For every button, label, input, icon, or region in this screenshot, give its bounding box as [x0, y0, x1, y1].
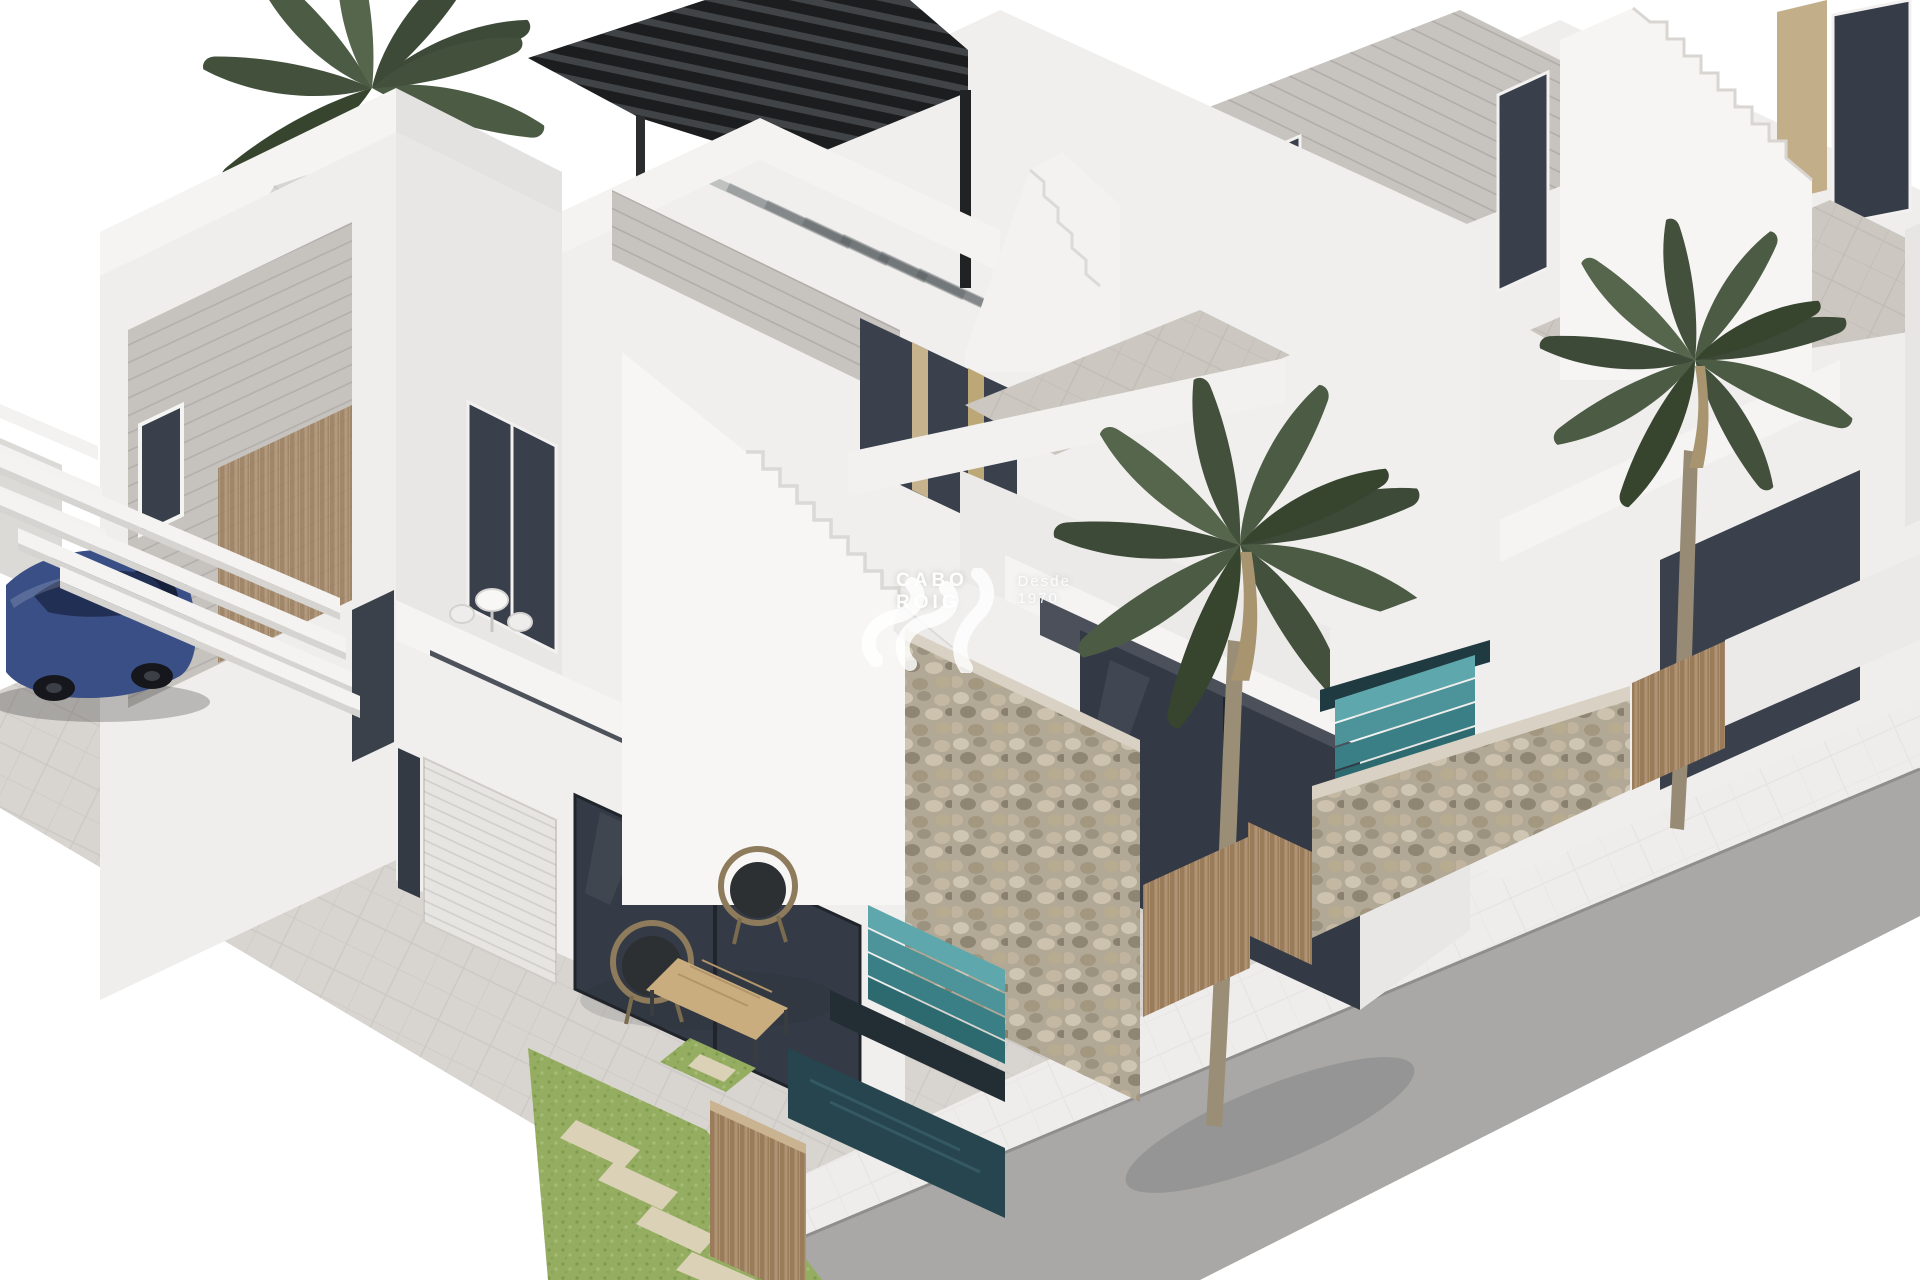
- villa-4-wall: [1905, 223, 1920, 527]
- villa-1-narrow-window: [398, 748, 420, 898]
- villa-4-window: [1833, 0, 1910, 225]
- villa-1-entry-door: [352, 590, 394, 762]
- villa-3-window-3: [1498, 72, 1548, 291]
- pergola-post: [960, 90, 971, 288]
- render-canvas: CABO ROIG Desde 1970: [0, 0, 1920, 1280]
- scene: [0, 0, 1920, 1280]
- villa-4: [1905, 223, 1920, 527]
